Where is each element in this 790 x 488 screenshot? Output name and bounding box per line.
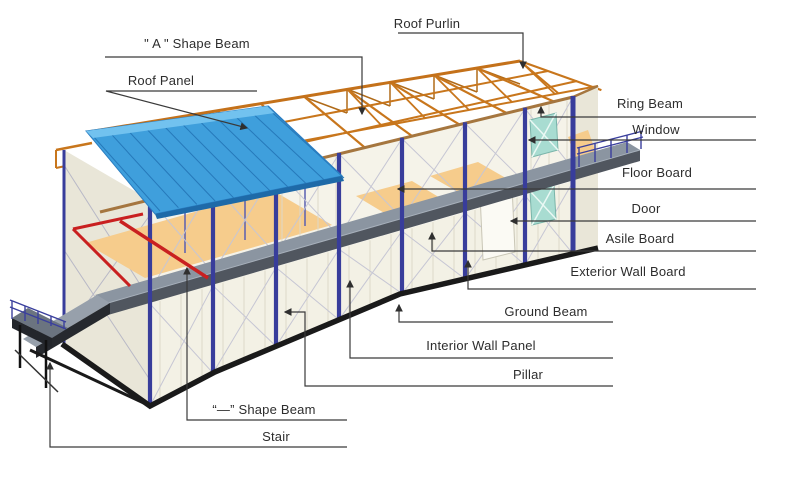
label-roof-purlin: Roof Purlin (394, 16, 461, 31)
label-floor-board: Floor Board (622, 165, 692, 180)
building-diagram: Roof Purlin " A " Shape Beam Roof Panel … (0, 0, 790, 488)
label-ring-beam: Ring Beam (617, 96, 683, 111)
label-stair: Stair (262, 429, 290, 444)
label-pillar: Pillar (513, 367, 544, 382)
label-flat-shape-beam: “—” Shape Beam (212, 402, 315, 417)
label-door: Door (632, 201, 661, 216)
truss-rafter (477, 68, 554, 102)
window-upper (530, 113, 558, 157)
label-interior-wall-panel: Interior Wall Panel (426, 338, 536, 353)
diagram-page: Roof Purlin " A " Shape Beam Roof Panel … (0, 0, 790, 488)
label-asile-board: Asile Board (606, 231, 675, 246)
label-window: Window (632, 122, 680, 137)
label-a-shape-beam: " A " Shape Beam (144, 36, 250, 51)
label-ground-beam: Ground Beam (504, 304, 587, 319)
label-roof-panel: Roof Panel (128, 73, 194, 88)
truss-rafter (520, 61, 601, 90)
left-roof-stub (56, 143, 92, 150)
truss-rafter (347, 89, 412, 136)
label-exterior-wall-board: Exterior Wall Board (570, 264, 685, 279)
